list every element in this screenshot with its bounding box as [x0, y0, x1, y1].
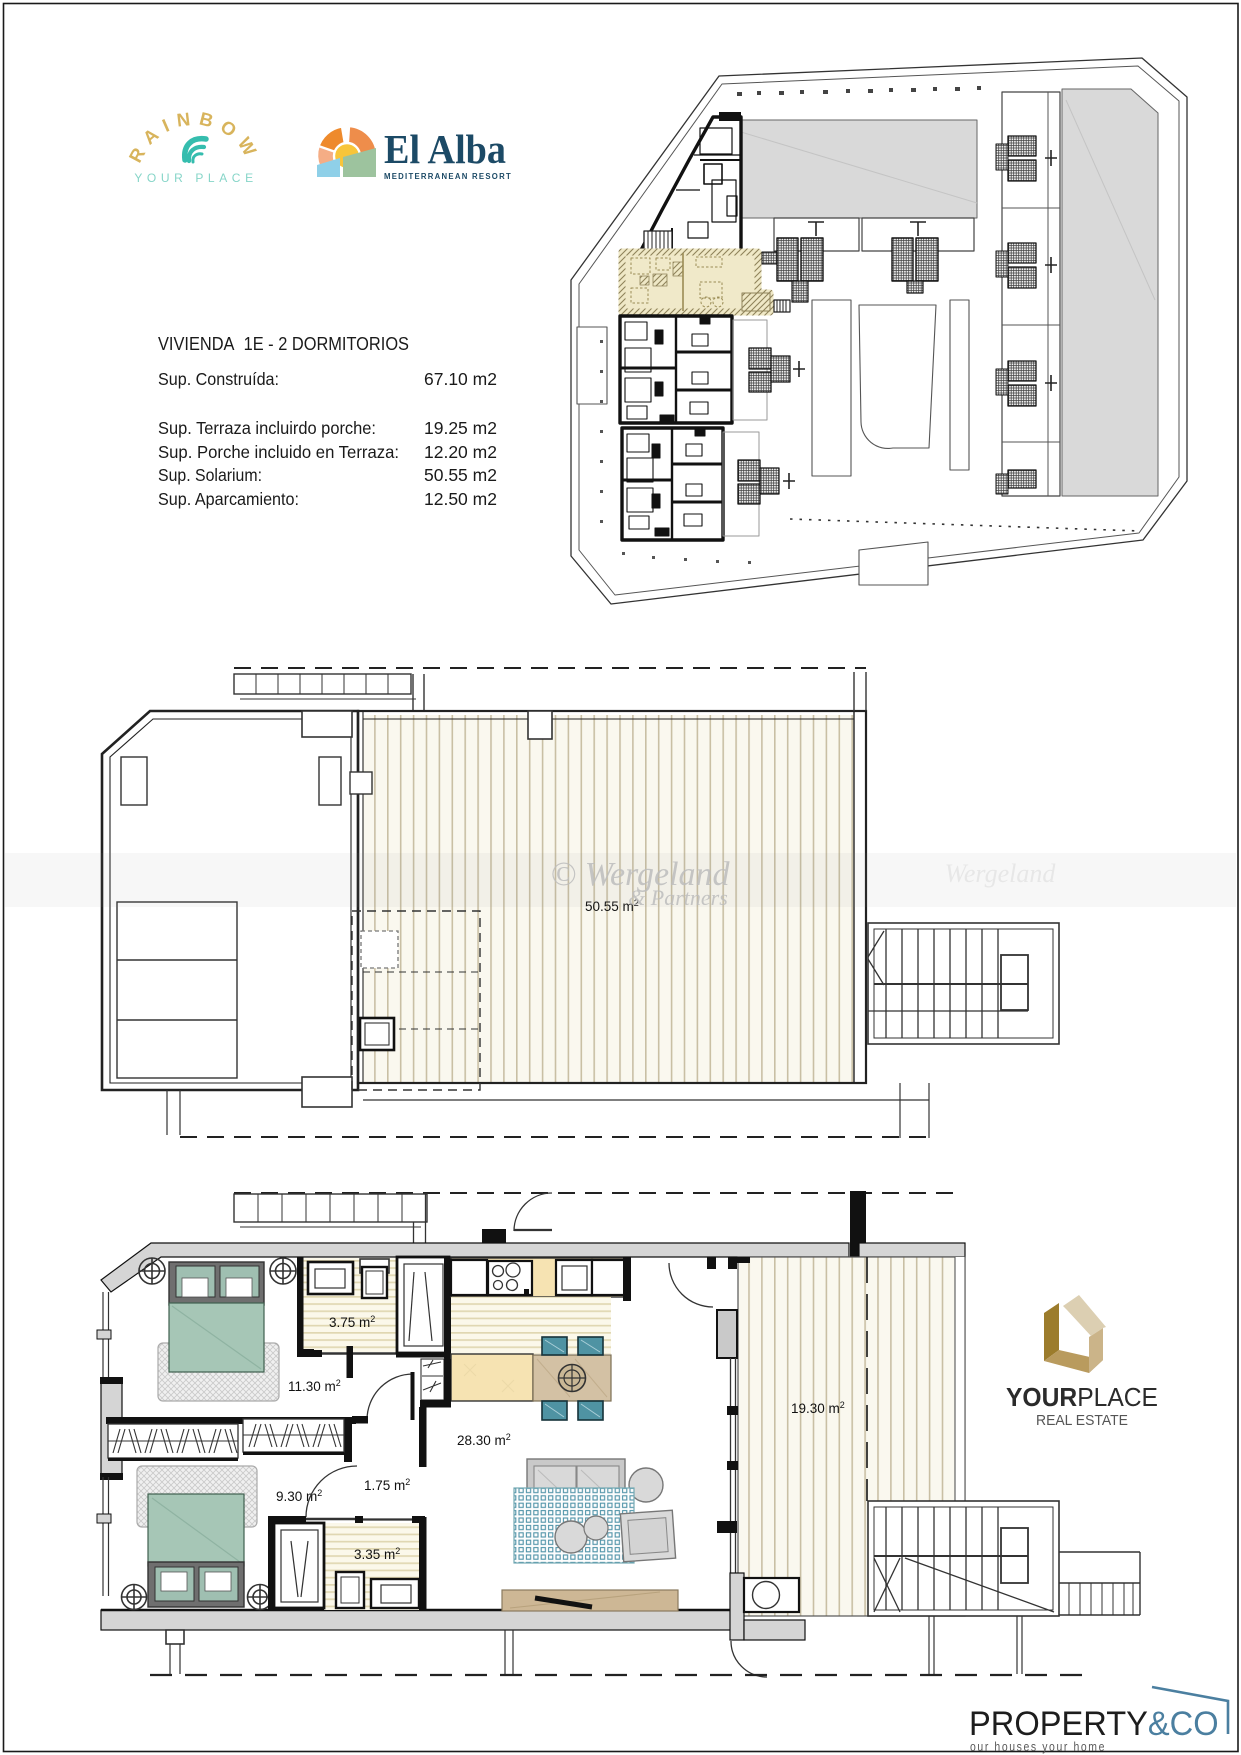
svg-text:our houses your home: our houses your home: [970, 1739, 1106, 1754]
svg-text:50.55 m2: 50.55 m2: [424, 465, 497, 485]
svg-text:67.10 m2: 67.10 m2: [424, 369, 497, 389]
svg-text:Sup. Aparcamiento:: Sup. Aparcamiento:: [158, 489, 299, 509]
svg-text:Sup. Porche incluido en Terraz: Sup. Porche incluido en Terraza:: [158, 442, 399, 462]
svg-text:VIVIENDA 1E - 2 DORMITORIOS: VIVIENDA 1E - 2 DORMITORIOS: [158, 333, 409, 354]
svg-text:3.75 m2: 3.75 m2: [329, 1314, 375, 1330]
svg-text:Sup. Terraza incluirdo porche:: Sup. Terraza incluirdo porche:: [158, 418, 376, 438]
svg-text:9.30 m2: 9.30 m2: [276, 1488, 322, 1504]
svg-text:1.75 m2: 1.75 m2: [364, 1477, 410, 1493]
svg-text:19.25 m2: 19.25 m2: [424, 418, 497, 438]
svg-text:YOUR PLACE: YOUR PLACE: [134, 171, 257, 185]
svg-text:28.30 m2: 28.30 m2: [457, 1432, 511, 1448]
svg-text:Sup. Construída:: Sup. Construída:: [158, 369, 279, 389]
svg-text:El Alba: El Alba: [384, 126, 506, 172]
svg-text:Sup. Solarium:: Sup. Solarium:: [158, 465, 262, 485]
svg-text:MEDITERRANEAN RESORT: MEDITERRANEAN RESORT: [384, 171, 512, 181]
svg-text:12.20 m2: 12.20 m2: [424, 442, 497, 462]
svg-text:12.50 m2: 12.50 m2: [424, 489, 497, 509]
svg-text:REAL ESTATE: REAL ESTATE: [1036, 1412, 1128, 1429]
svg-text:3.35 m2: 3.35 m2: [354, 1546, 400, 1562]
svg-text:19.30 m2: 19.30 m2: [791, 1400, 845, 1416]
svg-text:Wergeland: Wergeland: [945, 859, 1057, 888]
svg-text:11.30 m2: 11.30 m2: [288, 1378, 341, 1394]
svg-text:PROPERTY&CO: PROPERTY&CO: [969, 1705, 1219, 1743]
svg-text:YOURPLACE: YOURPLACE: [1006, 1382, 1158, 1412]
svg-text:& Partners: & Partners: [628, 885, 728, 910]
